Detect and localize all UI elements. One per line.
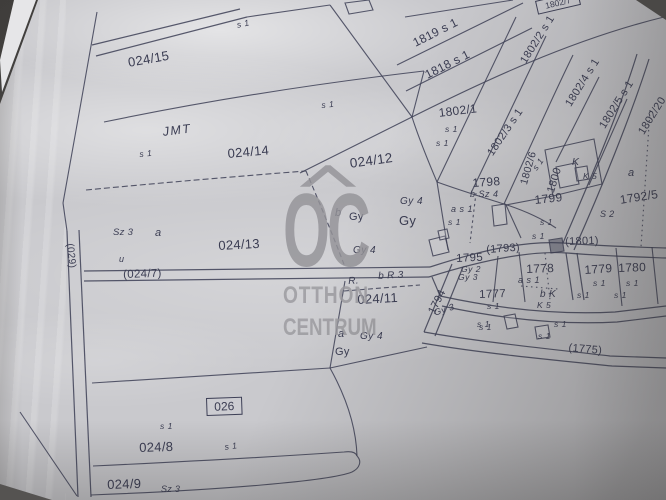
road-label-029: (029) bbox=[64, 243, 77, 269]
soil-mark-s1: s 1 bbox=[321, 100, 335, 110]
soil-mark-gy: Gy bbox=[349, 212, 364, 223]
soil-mark-k5: K 5 bbox=[537, 301, 551, 310]
subparcel-a-mark: a bbox=[155, 228, 161, 239]
parcel-label-024-14: 024/14 bbox=[227, 143, 270, 160]
road-label-024-7: (024/7) bbox=[123, 269, 162, 282]
soil-mark-s1: s 1 bbox=[554, 320, 567, 329]
soil-mark-s1: s 1 bbox=[448, 218, 461, 227]
soil-mark-a-s1: a s 1 bbox=[451, 205, 473, 214]
parcel-label-1799: 1799 bbox=[534, 191, 563, 206]
soil-mark-s1: s 1 bbox=[593, 279, 606, 288]
soil-mark-s1: s 1 bbox=[445, 125, 458, 134]
soil-mark-s1: s 1 bbox=[540, 218, 553, 227]
parcel-label-024-8: 024/8 bbox=[139, 440, 173, 454]
soil-mark-s1: s 1 bbox=[436, 139, 449, 148]
soil-mark-s1: s 1 bbox=[224, 441, 238, 451]
soil-mark-s1: s 1 bbox=[532, 232, 545, 241]
soil-mark-s1: s 1 bbox=[538, 332, 551, 341]
soil-mark-b-sz4: b Sz 4 bbox=[470, 190, 499, 199]
soil-mark-b-r3: b R 3 bbox=[378, 271, 404, 282]
soil-mark-gy3: Gy 3 bbox=[458, 273, 478, 282]
soil-mark-gy: Gy bbox=[335, 347, 350, 358]
soil-mark-sz3: Sz 3 bbox=[161, 485, 180, 494]
parcel-label-024-11: 024/11 bbox=[357, 291, 398, 306]
soil-mark-s1: s 1 bbox=[487, 302, 500, 311]
parcel-label-1777: 1777 bbox=[479, 289, 506, 301]
soil-mark-s1: s 1 bbox=[160, 422, 173, 431]
parcel-026-box: 026 bbox=[206, 397, 243, 416]
parcel-label-1778: 1778 bbox=[526, 262, 554, 275]
soil-mark-gy4: Gy 4 bbox=[353, 246, 376, 256]
soil-mark-gy4: Gy 4 bbox=[360, 332, 383, 342]
map-frame-lines bbox=[20, 12, 97, 496]
road-029 bbox=[67, 230, 91, 497]
parcel-label-1779: 1779 bbox=[584, 262, 613, 276]
soil-mark-s1: s 1 bbox=[139, 149, 153, 159]
soil-mark-s2: S 2 bbox=[600, 210, 614, 219]
cadastral-map-photo: 024/15 JMT s 1 024/14 s 1 s 1 1819 s 1 1… bbox=[0, 0, 666, 500]
soil-mark-gy: Gy bbox=[399, 214, 416, 227]
soil-mark-a-s1: a s 1 bbox=[518, 276, 540, 285]
soil-mark-s1: s 1 bbox=[614, 291, 627, 300]
soil-mark-b-k: b K bbox=[540, 290, 556, 300]
soil-mark-k: K bbox=[572, 157, 579, 168]
soil-mark-gy4: Gy 4 bbox=[400, 197, 423, 207]
parcel-label-1798: 1798 bbox=[472, 175, 501, 189]
soil-mark-s1: s 1 bbox=[626, 279, 639, 288]
subparcel-a-mark: a bbox=[628, 168, 634, 179]
road-topleft bbox=[92, 9, 247, 56]
parcel-boundaries-south bbox=[91, 247, 658, 495]
soil-mark-s1: s 1 bbox=[577, 291, 590, 300]
soil-mark-r: R. bbox=[348, 276, 359, 287]
gate-mark-u: u bbox=[119, 255, 124, 264]
map-linework bbox=[0, 0, 666, 500]
soil-mark-sz3: Sz 3 bbox=[113, 228, 133, 238]
parcel-label-024-9: 024/9 bbox=[107, 477, 141, 491]
parcel-label-1780: 1780 bbox=[618, 261, 646, 274]
soil-mark-s1: s 1 bbox=[479, 323, 492, 332]
road-label-1793: (1793) bbox=[486, 243, 520, 256]
parcel-label-026: 026 bbox=[214, 399, 235, 414]
soil-mark-k5: K 5 bbox=[583, 172, 597, 181]
subparcel-b-mark: b bbox=[335, 208, 341, 219]
road-label-1801: (1801) bbox=[565, 236, 599, 248]
parcel-label-024-13: 024/13 bbox=[218, 237, 260, 252]
subparcel-a-mark: a bbox=[338, 329, 344, 340]
